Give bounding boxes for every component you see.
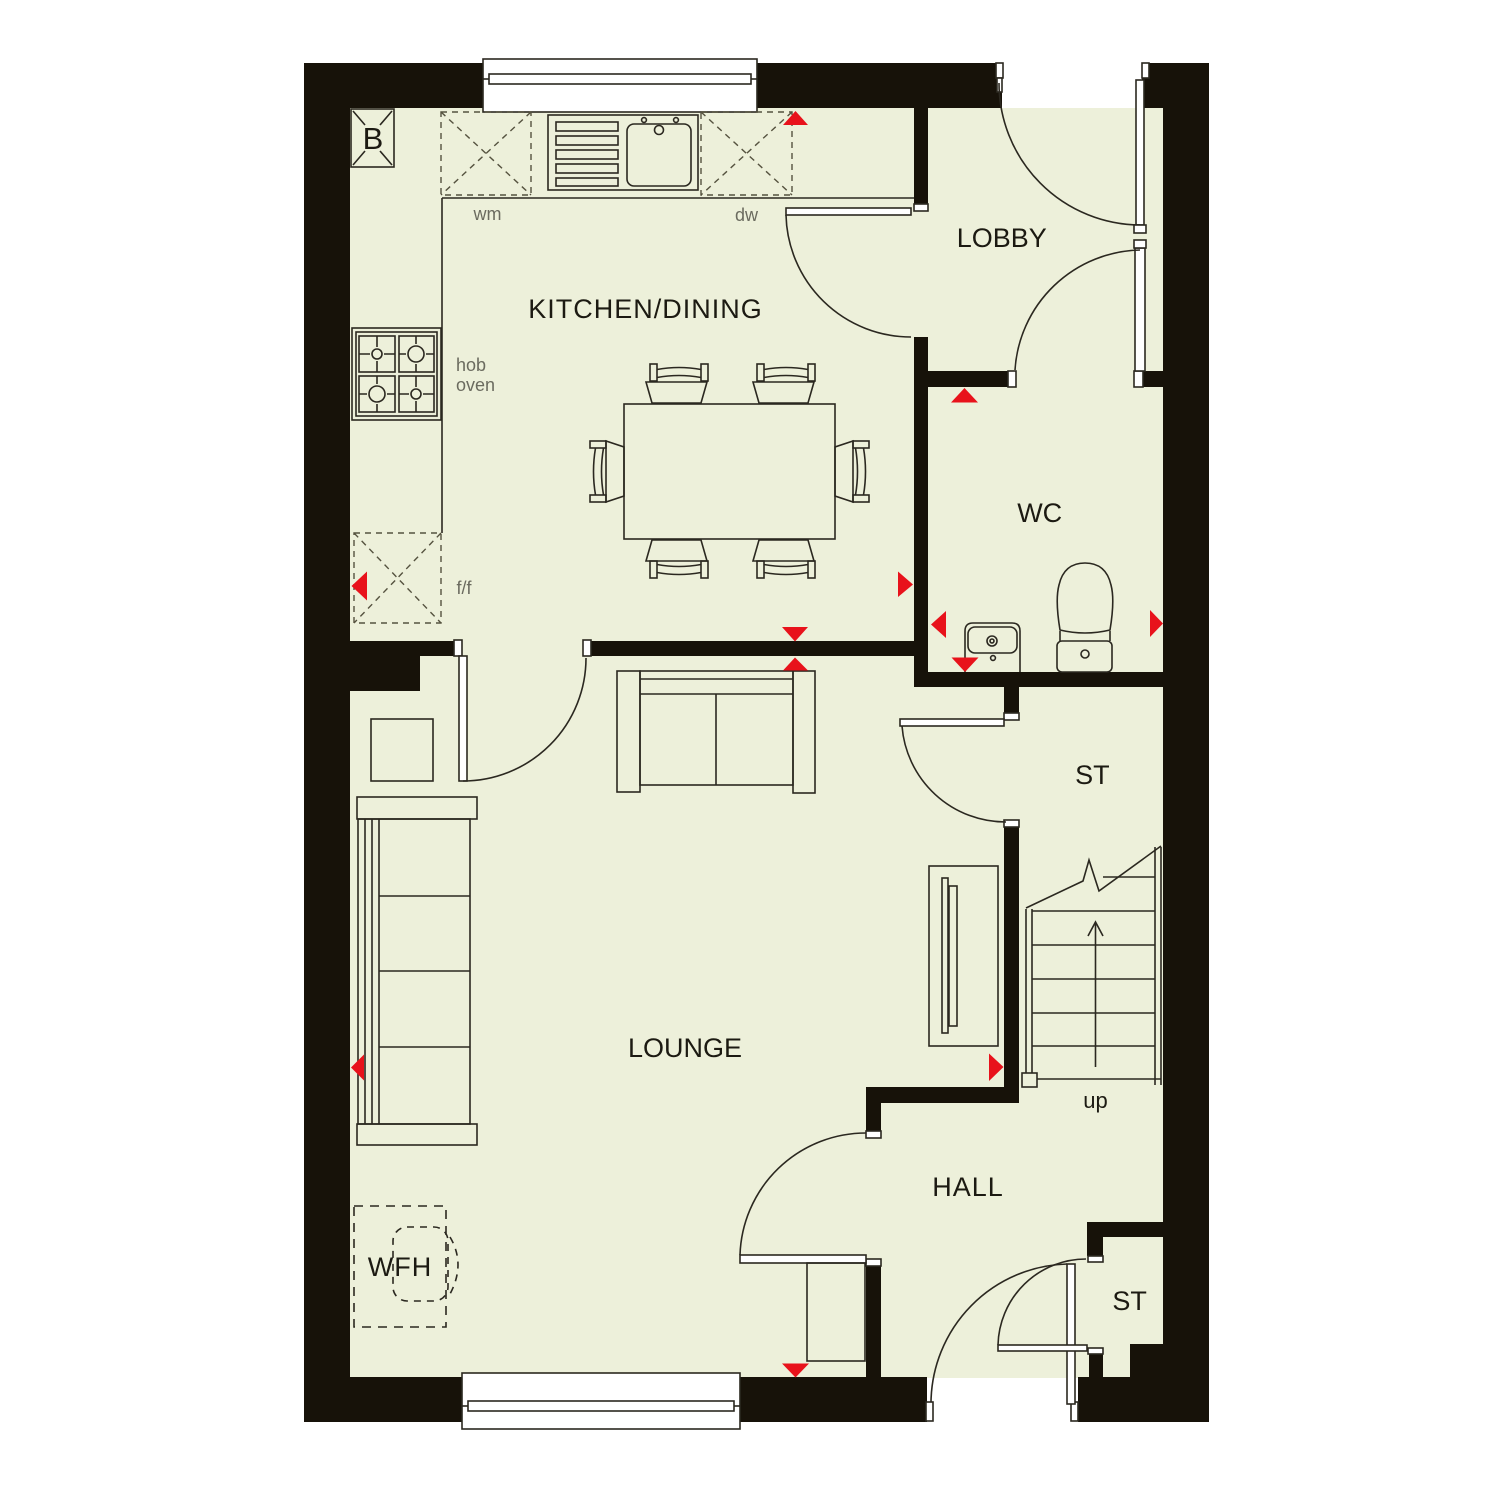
svg-text:ST: ST [1112, 1286, 1147, 1316]
svg-text:LOBBY: LOBBY [957, 223, 1047, 253]
svg-text:hob: hob [456, 355, 486, 375]
svg-text:up: up [1083, 1088, 1107, 1113]
svg-text:wm: wm [473, 204, 502, 224]
svg-text:LOUNGE: LOUNGE [628, 1033, 742, 1063]
svg-text:ST: ST [1075, 760, 1110, 790]
svg-text:f/f: f/f [456, 578, 472, 598]
svg-text:oven: oven [456, 375, 495, 395]
svg-text:dw: dw [735, 205, 759, 225]
svg-text:B: B [363, 121, 384, 156]
svg-text:WFH: WFH [368, 1252, 432, 1282]
svg-text:WC: WC [1017, 498, 1062, 528]
svg-text:HALL: HALL [932, 1172, 1004, 1202]
svg-text:KITCHEN/DINING: KITCHEN/DINING [528, 294, 763, 324]
